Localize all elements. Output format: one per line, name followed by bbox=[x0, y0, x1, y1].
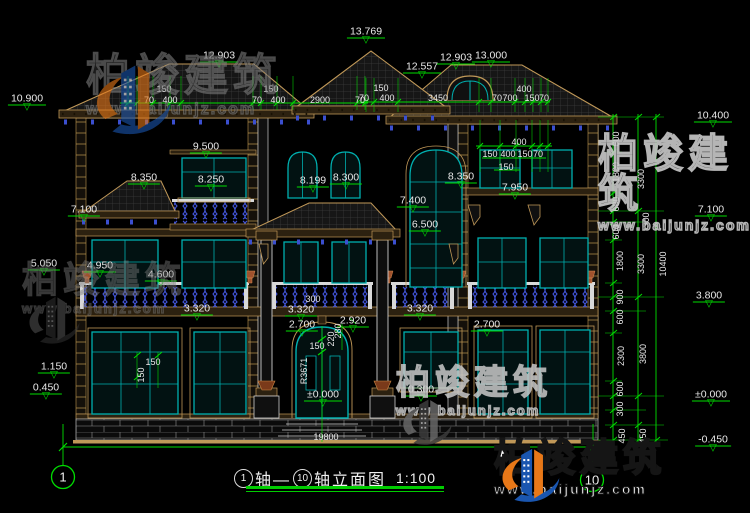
title-axis-bubble-end: 10 bbox=[293, 469, 312, 488]
dimension-label: 70 bbox=[533, 149, 543, 159]
level-marker-triangle: ▽ bbox=[457, 181, 465, 191]
dimension-label-vertical: R3671 bbox=[299, 358, 309, 385]
dimension-label: 70 bbox=[144, 95, 154, 105]
dimension-label-vertical: 600 bbox=[615, 309, 625, 324]
level-marker-triangle: ▽ bbox=[215, 60, 223, 70]
dimension-label-vertical: 600 bbox=[611, 131, 621, 146]
dimension-label-vertical: 600 bbox=[611, 196, 621, 211]
title-underline-thin bbox=[246, 491, 444, 492]
elevation-label: 4.950▽ bbox=[84, 260, 116, 273]
elevation-label: 8.350▽ bbox=[445, 171, 477, 184]
dimension-label: 70 bbox=[539, 93, 549, 103]
elevation-label: 2.700▽ bbox=[286, 319, 318, 332]
elevation-label: 8.300▽ bbox=[330, 172, 362, 185]
dimension-label: 150 bbox=[524, 93, 539, 103]
level-marker-triangle: ▽ bbox=[342, 182, 350, 192]
level-marker-triangle: ▽ bbox=[309, 185, 317, 195]
elevation-label: 0.450▽ bbox=[30, 382, 62, 395]
elevation-label: 5.050▽ bbox=[28, 258, 60, 271]
elevation-drawing: 1 10 10.900▽12.903▽13.769▽12.557▽12.903▽… bbox=[0, 0, 750, 513]
elevation-label: 12.903▽ bbox=[200, 50, 238, 63]
elevation-label: 3.320▽ bbox=[181, 303, 213, 316]
level-marker-triangle: ▽ bbox=[418, 71, 426, 81]
elevation-label: 10.400▽ bbox=[694, 110, 732, 123]
dimension-label: 150 bbox=[156, 84, 171, 94]
level-marker-triangle: ▽ bbox=[487, 60, 495, 70]
level-marker-triangle: ▽ bbox=[96, 270, 104, 280]
dimension-label-vertical: 1800 bbox=[615, 251, 625, 271]
level-marker-triangle: ▽ bbox=[42, 392, 50, 402]
level-marker-triangle: ▽ bbox=[709, 444, 717, 454]
level-marker-triangle: ▽ bbox=[50, 371, 58, 381]
elevation-label: 3.800▽ bbox=[693, 290, 725, 303]
dimension-label: 300 bbox=[305, 294, 320, 304]
dimension-label-vertical: 600 bbox=[611, 224, 621, 239]
elevation-label: 7.400▽ bbox=[397, 195, 429, 208]
dimension-label-vertical: 3300 bbox=[636, 169, 646, 189]
level-marker-triangle: ▽ bbox=[452, 62, 460, 72]
dimension-label: 3450 bbox=[428, 93, 448, 103]
level-marker-triangle: ▽ bbox=[511, 192, 519, 202]
level-marker-triangle: ▽ bbox=[417, 394, 425, 404]
level-marker-triangle: ▽ bbox=[483, 329, 491, 339]
level-marker-triangle: ▽ bbox=[298, 329, 306, 339]
elevation-label: 7.100▽ bbox=[695, 204, 727, 217]
elevation-label: 8.350▽ bbox=[128, 172, 160, 185]
elevation-label: 7.100▽ bbox=[68, 204, 100, 217]
level-marker-triangle: ▽ bbox=[707, 214, 715, 224]
dimension-label: 400 bbox=[162, 95, 177, 105]
elevation-label: 10.900▽ bbox=[8, 93, 46, 106]
level-marker-triangle: ▽ bbox=[709, 120, 717, 130]
dimension-label-vertical: 450 bbox=[617, 428, 627, 443]
level-marker-triangle: ▽ bbox=[705, 300, 713, 310]
axis-bubble-10: 10 bbox=[585, 473, 599, 488]
dimension-label: 70 bbox=[359, 93, 369, 103]
dimension-label-vertical: 10400 bbox=[658, 251, 668, 276]
level-marker-triangle: ▽ bbox=[416, 313, 424, 323]
dimension-label: 150 bbox=[517, 149, 532, 159]
dimension-label-vertical: 450 bbox=[638, 428, 648, 443]
level-marker-triangle: ▽ bbox=[157, 279, 165, 289]
elevation-label: 12.557▽ bbox=[403, 61, 441, 74]
elevation-label: 6.500▽ bbox=[409, 219, 441, 232]
level-marker-triangle: ▽ bbox=[207, 184, 215, 194]
dimension-label: 70 bbox=[492, 93, 502, 103]
elevation-label: 3.320▽ bbox=[404, 303, 436, 316]
axis-bubble-1: 1 bbox=[59, 470, 66, 485]
dimension-label-vertical: 150 bbox=[136, 367, 146, 382]
elevation-label: 3.320▽ bbox=[285, 304, 317, 317]
dimension-label: 19800 bbox=[313, 432, 338, 442]
dimension-label-vertical: 300 bbox=[641, 212, 651, 227]
elevation-label: 2.700▽ bbox=[471, 319, 503, 332]
elevation-label: 12.903▽ bbox=[437, 52, 475, 65]
dimension-label: 400 bbox=[270, 95, 285, 105]
dimension-label: 70 bbox=[252, 95, 262, 105]
dimension-label-vertical: 1800 bbox=[611, 162, 621, 182]
dimension-label: 150 bbox=[498, 162, 513, 172]
dimension-label: 150 bbox=[263, 84, 278, 94]
level-marker-triangle: ▽ bbox=[140, 182, 148, 192]
dimension-label-vertical: 2300 bbox=[616, 346, 626, 366]
elevation-label: 13.769▽ bbox=[347, 26, 385, 39]
elevation-label: -0.450▽ bbox=[695, 434, 731, 447]
title-underline-thick bbox=[246, 486, 444, 489]
dimension-label: 700 bbox=[502, 93, 517, 103]
level-marker-triangle: ▽ bbox=[202, 151, 210, 161]
level-marker-triangle: ▽ bbox=[362, 36, 370, 46]
dimension-label: 2900 bbox=[310, 95, 330, 105]
dimension-label: 400 bbox=[379, 93, 394, 103]
elevation-label: 7.950▽ bbox=[499, 182, 531, 195]
dimension-label-vertical: 900 bbox=[615, 289, 625, 304]
title-axis-bubble-start: 1 bbox=[234, 469, 253, 488]
level-marker-triangle: ▽ bbox=[421, 229, 429, 239]
elevation-label: 8.250▽ bbox=[195, 174, 227, 187]
elevation-label: 4.600▽ bbox=[145, 269, 177, 282]
dimension-label: 150 bbox=[373, 83, 388, 93]
dimension-label-vertical: 300 bbox=[615, 401, 625, 416]
level-marker-triangle: ▽ bbox=[349, 325, 357, 335]
elevation-label: ±0.000▽ bbox=[304, 389, 342, 402]
dimension-label: 150 bbox=[309, 341, 324, 351]
dimension-label: 400 bbox=[500, 149, 515, 159]
dimension-label: 150 bbox=[145, 357, 160, 367]
level-marker-triangle: ▽ bbox=[409, 205, 417, 215]
level-marker-triangle: ▽ bbox=[319, 399, 327, 409]
dimension-label: 150 bbox=[482, 149, 497, 159]
dimension-label-vertical: 600 bbox=[615, 381, 625, 396]
dimension-label: 400 bbox=[511, 137, 526, 147]
level-marker-triangle: ▽ bbox=[40, 268, 48, 278]
title-scale: 1:100 bbox=[396, 470, 436, 486]
elevation-label: ±0.000▽ bbox=[692, 389, 730, 402]
level-marker-triangle: ▽ bbox=[80, 214, 88, 224]
dimension-label-vertical: 3300 bbox=[636, 254, 646, 274]
elevation-label: 1.150▽ bbox=[38, 361, 70, 374]
dimension-label-vertical: 3800 bbox=[638, 344, 648, 364]
level-marker-triangle: ▽ bbox=[707, 399, 715, 409]
elevation-label: 13.000▽ bbox=[472, 50, 510, 63]
elevation-label: 0.300▽ bbox=[405, 384, 437, 397]
dimension-label-vertical: 220 bbox=[326, 331, 336, 346]
elevation-label: 9.500▽ bbox=[190, 141, 222, 154]
level-marker-triangle: ▽ bbox=[193, 313, 201, 323]
level-marker-triangle: ▽ bbox=[23, 103, 31, 113]
elevation-label: 8.199▽ bbox=[297, 175, 329, 188]
